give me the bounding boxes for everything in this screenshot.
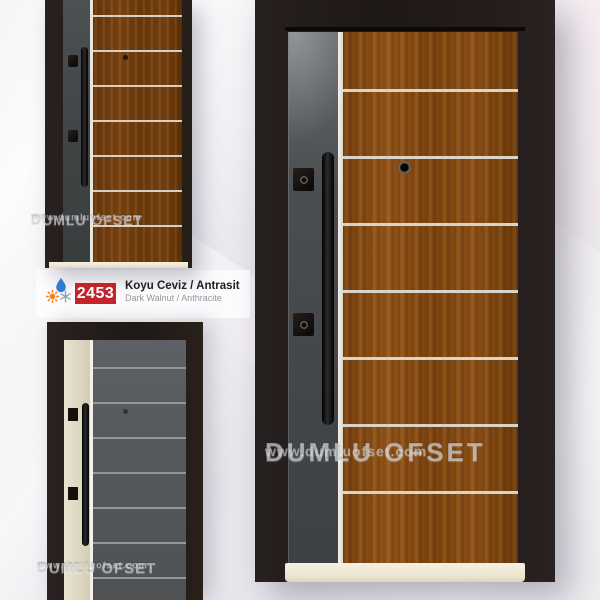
- frame-lintel-shadow: [285, 27, 525, 31]
- door-handle: [322, 152, 334, 425]
- lock-plate: [68, 487, 78, 500]
- door-handle: [82, 403, 89, 546]
- door-main-panel: [93, 340, 186, 600]
- peephole: [123, 55, 128, 60]
- lock-plate: [293, 313, 314, 336]
- door-thumbnail-top: DUMLU OFSET www.dumluofset.com: [45, 0, 192, 268]
- feature-icons: [45, 277, 79, 307]
- door-thumbnail-bottom: DUMLU OFSET www.dumluofset.com: [47, 322, 203, 600]
- catalog-page: DUMLU OFSET www.dumluofset.com DUMLU OFS…: [0, 0, 600, 600]
- sun-icon: [46, 290, 59, 303]
- door-wood-panel: [93, 0, 182, 262]
- product-code-badge: 2453: [75, 283, 116, 304]
- lock-plate: [68, 408, 78, 421]
- door-handle: [81, 47, 88, 187]
- door-wood-panel: [343, 32, 518, 563]
- lock-plate: [293, 168, 314, 191]
- peephole: [398, 161, 411, 174]
- door-sill: [285, 563, 525, 582]
- snowflake-icon: [59, 290, 72, 303]
- product-name-tr: Koyu Ceviz / Antrasit: [125, 280, 245, 292]
- lock-plate: [68, 55, 78, 67]
- door-sill: [49, 262, 188, 268]
- door-main: DUMLU OFSET www.dumluofset.com: [255, 0, 555, 582]
- lock-plate: [68, 130, 78, 142]
- product-name-en: Dark Walnut / Anthracite: [125, 293, 245, 303]
- peephole: [123, 409, 128, 414]
